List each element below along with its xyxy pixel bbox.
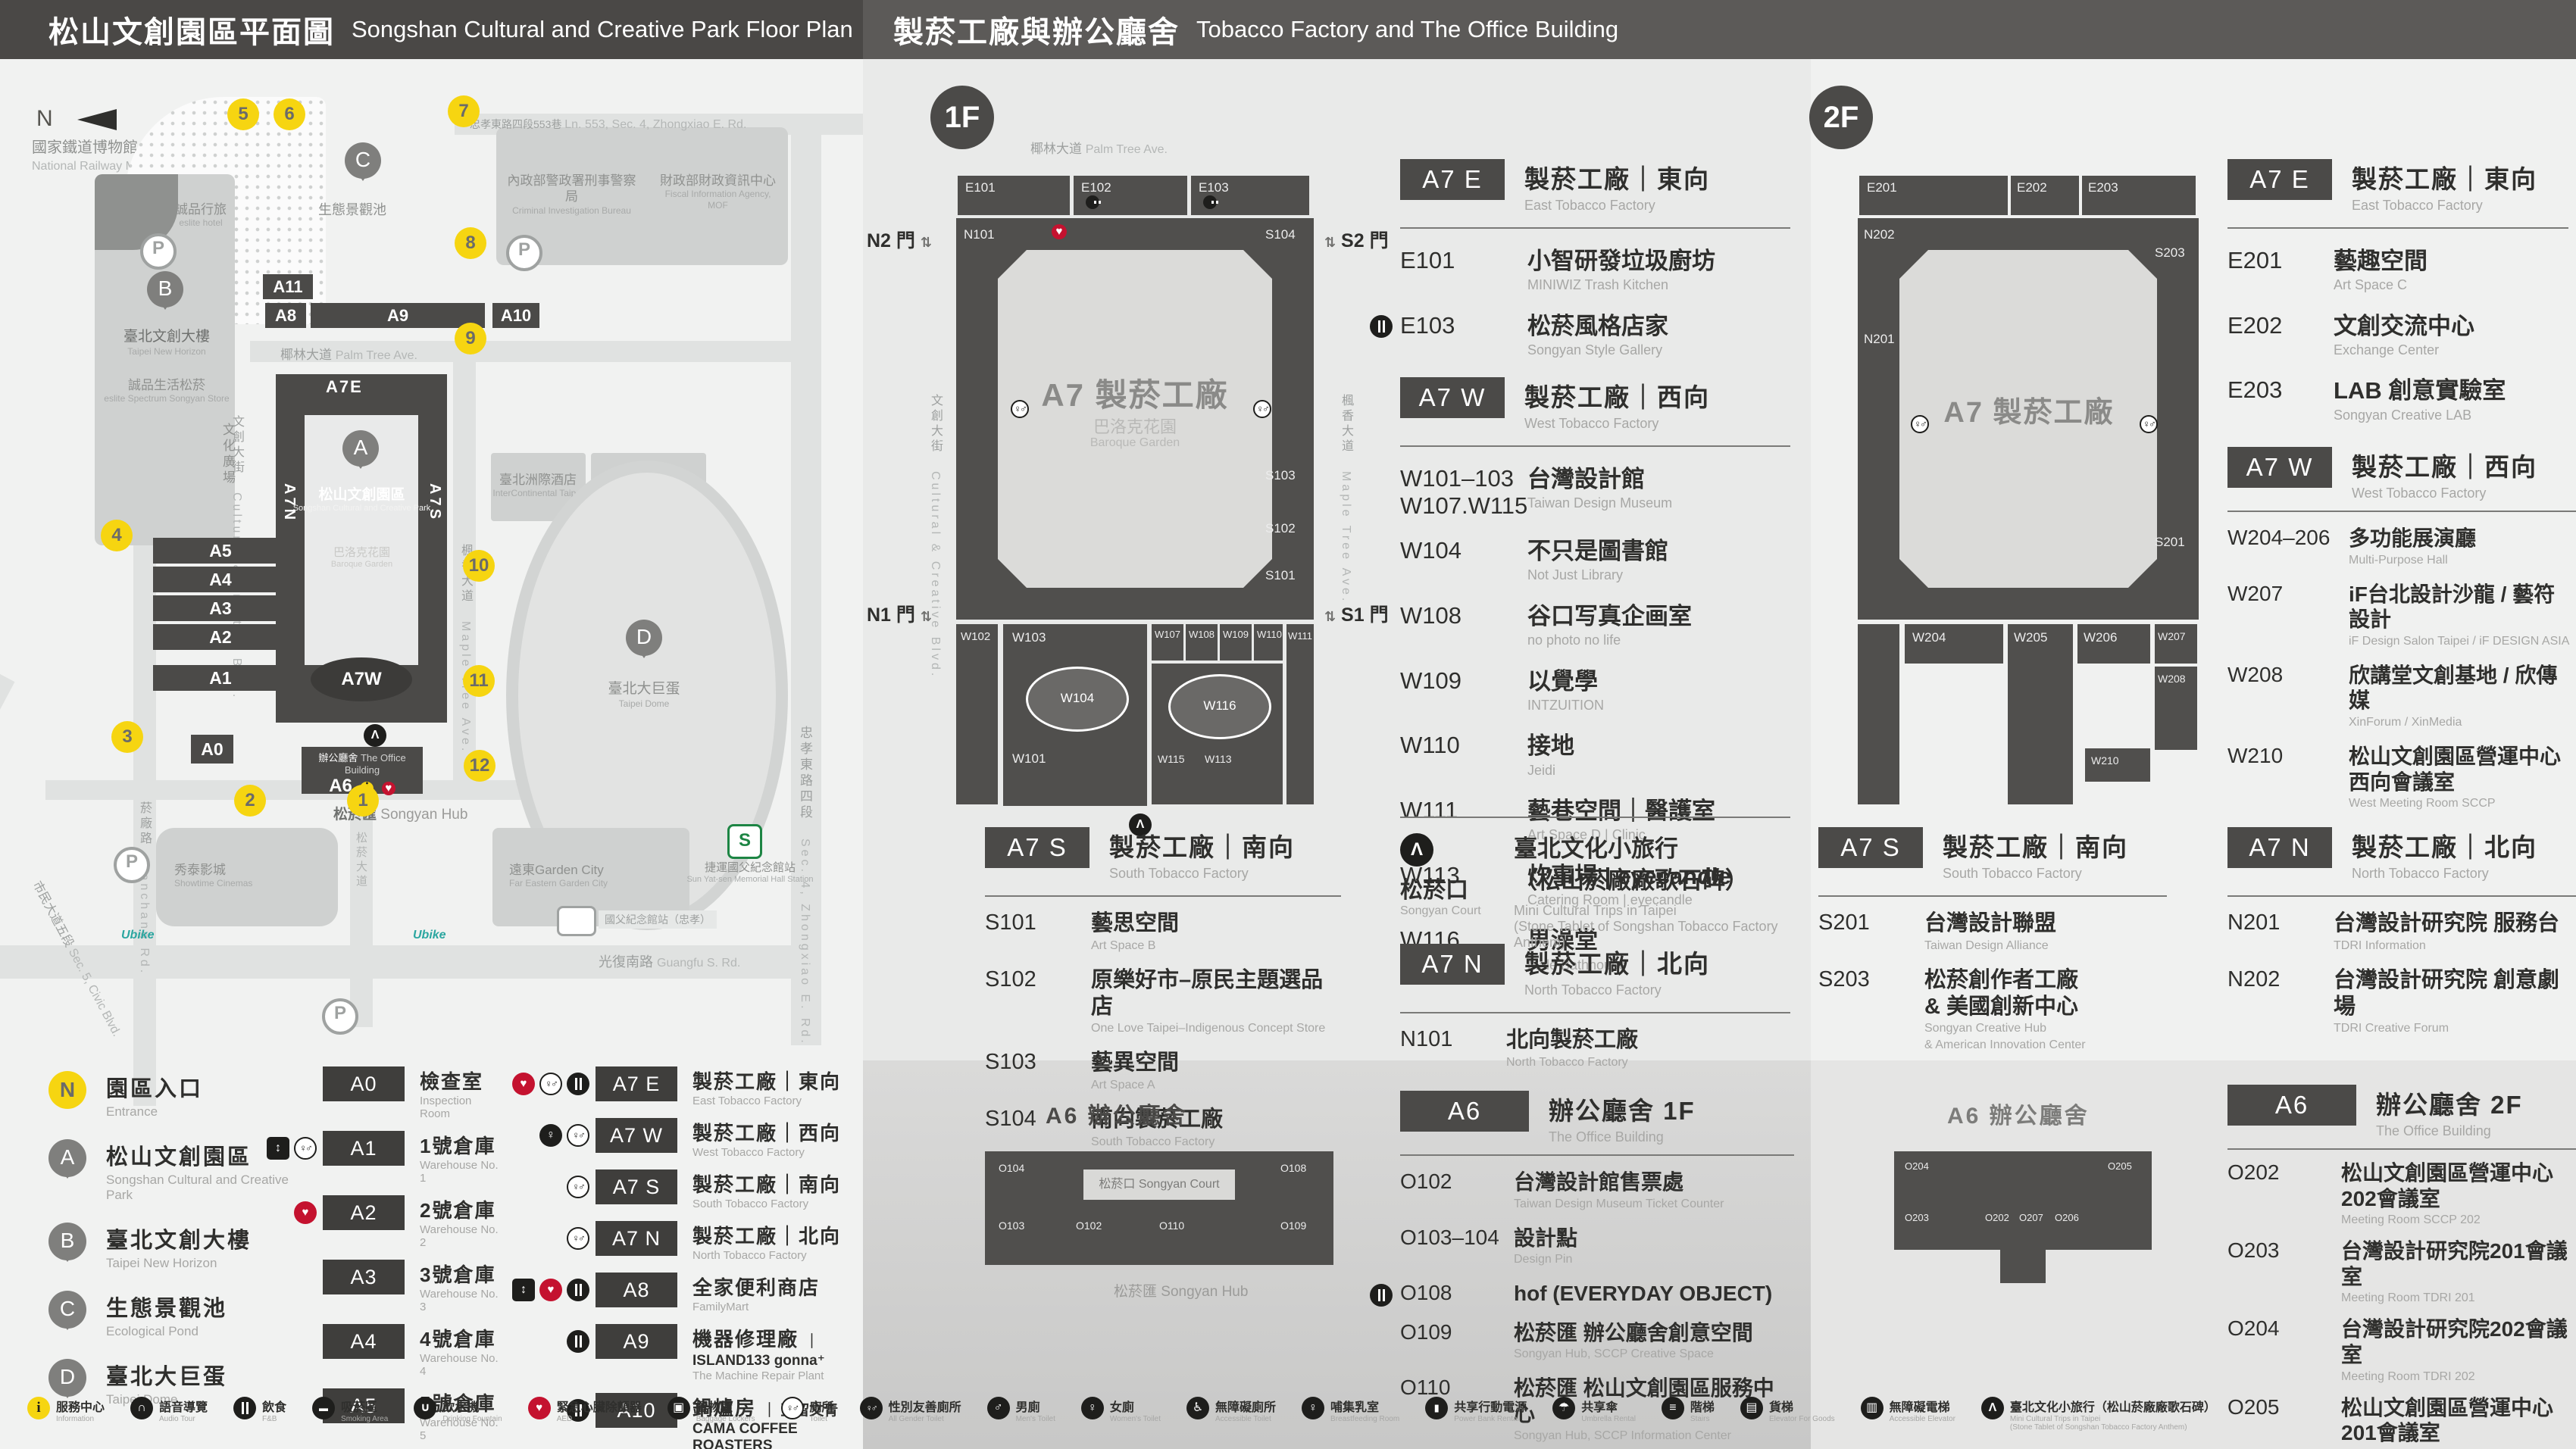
- divider: [2227, 227, 2568, 229]
- eslite-hotel-label: 誠品行旅 eslite hotel: [159, 201, 242, 229]
- guangfu-en: Guangfu S. Rd.: [657, 957, 740, 970]
- legend-building-row: A8 全家便利商店 FamilyMart: [500, 1273, 864, 1313]
- dining-icon: [567, 1330, 589, 1353]
- header-left: 松山文創園區平面圖 Songshan Cultural and Creative…: [0, 0, 863, 59]
- a6-2f-plan-stair: [2000, 1250, 2046, 1283]
- civic-zh: 市民大道五段: [30, 879, 76, 950]
- a7e-title-zh: 製菸工廠｜東向: [2352, 159, 2537, 195]
- toilet-icon: [539, 1073, 562, 1095]
- facility-en: Elevator For Goods: [1769, 1415, 1835, 1423]
- legend-building-en: Inspection Room: [420, 1095, 500, 1120]
- directory-2f-a7n: A7 N 製菸工廠｜北向 North Tobacco Factory N201 …: [2227, 827, 2576, 1036]
- lane553-label: 忠孝東路四段553巷 Ln. 553, Sec. 4, Zhongxiao E.…: [470, 117, 746, 132]
- legend-building-badge: A4: [323, 1324, 405, 1359]
- zhongxiao-label: 忠孝東路四段 Sec. 4, Zhongxiao E. Rd.: [796, 726, 814, 1046]
- entrance-7: 7: [448, 95, 480, 127]
- legend-building-row: A7 W 製菸工廠｜西向 West Tobacco Factory: [500, 1118, 864, 1159]
- a7s-badge: A7 S: [985, 827, 1089, 868]
- legend-building-row: A7 E 製菸工廠｜東向 East Tobacco Factory: [500, 1066, 864, 1107]
- facility-en: Baggage Lockers: [696, 1415, 755, 1423]
- a6-room-o102: O102: [1076, 1219, 1102, 1232]
- plan1f-road-right: 楓香大道 Maple Tree Ave.: [1336, 394, 1355, 604]
- plan1f-room-w115: W115: [1158, 753, 1185, 765]
- songyankou-section: 松菸口 Songyan Court 臺北文化小旅行 （松山菸廠廠歌石碑） Min…: [1400, 817, 1790, 951]
- facility-zh: 共享傘: [1581, 1397, 1636, 1415]
- legend-buildings-2: A7 E 製菸工廠｜東向 East Tobacco Factory A7 W 製…: [500, 1066, 864, 1449]
- a6-2f-plan-body: O204 O203 O202 O207 O206 O205: [1894, 1151, 2152, 1250]
- a6-room-o109: O109: [1280, 1219, 1306, 1232]
- facility-en: Audio Tour: [159, 1415, 208, 1423]
- facility-zh: 置物櫃: [696, 1397, 755, 1415]
- plan1f-room-w108: W108: [1186, 624, 1218, 660]
- a6-title-en: The Office Building: [1549, 1129, 1696, 1145]
- facility-zh: 性別友善廁所: [889, 1397, 961, 1415]
- plan1f-room-e102: E102: [1074, 176, 1187, 215]
- map-building-a9: A9: [311, 303, 485, 328]
- directory-row: S103 藝異空間Art Space A: [985, 1050, 1341, 1093]
- legend-marker: B: [48, 1223, 86, 1260]
- aed-icon: [382, 782, 395, 795]
- directory-row: O102 台灣設計館售票處Taiwan Design Museum Ticket…: [1400, 1170, 1794, 1212]
- a7e-map-text: A7E: [326, 377, 363, 396]
- plan2f-center-title: A7 製菸工廠: [1900, 389, 2158, 430]
- a6-room-o104: O104: [999, 1162, 1024, 1174]
- legend-building-row: A7 S 製菸工廠｜南向 South Tobacco Factory: [500, 1170, 864, 1210]
- directory-1f-a7n: A7 N 製菸工廠｜北向 North Tobacco Factory N101 …: [1400, 944, 1790, 1070]
- a6-room-o204: O204: [1905, 1160, 1929, 1172]
- trip-icon: [1981, 1397, 2004, 1419]
- map-building-a3: A3: [153, 595, 288, 621]
- legend-building-badge: A0: [323, 1066, 405, 1101]
- mrt-zh: 捷運國父紀念館站: [705, 861, 796, 874]
- a7n-title-zh: 製菸工廠｜北向: [2352, 827, 2537, 863]
- facility-item: 服務中心 Information: [27, 1397, 105, 1423]
- facility-en: Accessible Toilet: [1215, 1415, 1276, 1423]
- plan1f-room-e103: E103: [1191, 176, 1309, 215]
- plan1f-room-w116: W116: [1168, 674, 1271, 739]
- audio-icon: [130, 1397, 153, 1419]
- facility-item: 共享行動電源 Power Bank Rental: [1425, 1397, 1527, 1423]
- section-title-zh: 製菸工廠與辦公廳舍: [893, 8, 1180, 52]
- plan1f-room-w110: W110: [1254, 624, 1283, 660]
- park-name-en: Songshan Cultural and Creative Park: [288, 504, 436, 513]
- map-building-a1: A1: [153, 665, 288, 691]
- directory-row: S101 藝思空間Art Space B: [985, 910, 1341, 954]
- songyankou-zh: 臺北文化小旅行: [1514, 833, 1790, 865]
- gate-n2: N2 門 ⇅: [867, 226, 932, 253]
- legend-building-row: A2 2號倉庫 Warehouse No. 2: [227, 1195, 500, 1249]
- entrance-9: 9: [455, 323, 486, 354]
- legend-row-icons: [500, 1118, 589, 1153]
- plan1f-room-w109: W109: [1220, 624, 1252, 660]
- divider: [1400, 1154, 1794, 1156]
- pin-d-label: D: [636, 625, 652, 648]
- directory-row: W204–206 多功能展演廳Multi-Purpose Hall: [2227, 526, 2576, 568]
- eslite-spectrum-label: 誠品生活松菸 eslite Spectrum Songyan Store: [98, 377, 235, 404]
- facility-item: 置物櫃 Baggage Lockers: [667, 1397, 755, 1423]
- lane553-en: Ln. 553, Sec. 4, Zhongxiao E. Rd.: [564, 118, 746, 131]
- plan1f-room-w103-block: W103 W104 W101: [1003, 624, 1147, 806]
- facility-item: 廁所 Toilet: [781, 1397, 834, 1423]
- plan1f-room-n101: N101: [964, 227, 995, 242]
- pin-b-label: B: [158, 276, 173, 300]
- divider: [1400, 1012, 1790, 1013]
- baroque-en: Baroque Garden: [288, 560, 436, 569]
- floor-1f-badge: 1F: [930, 86, 994, 149]
- section-title-en: Tobacco Factory and The Office Building: [1196, 16, 1618, 43]
- divider: [2227, 1148, 2576, 1150]
- a5-label: A5: [209, 541, 231, 561]
- dining-icon: [1370, 1284, 1393, 1307]
- facility-en: Stairs: [1690, 1415, 1715, 1423]
- a6-songyancourt-label: 松菸口 Songyan Court: [1083, 1170, 1235, 1200]
- parking-p5: P: [334, 1003, 346, 1023]
- fia-zh: 財政部財政資訊中心: [660, 173, 776, 188]
- a7s-title-en: South Tobacco Factory: [1109, 866, 1295, 882]
- map-building-a4: A4: [153, 567, 288, 592]
- plan2f-room-n202: N202: [1864, 227, 1895, 242]
- showtime-label: 秀泰影城 Showtime Cinemas: [174, 862, 318, 889]
- facility-en: Smoking Area: [341, 1415, 388, 1423]
- a6-room-o108: O108: [1280, 1162, 1306, 1174]
- legend-building-badge: A8: [596, 1273, 677, 1307]
- a7s-title-en: South Tobacco Factory: [1943, 866, 2128, 882]
- facility-en2: (Stone Tablet of Songshan Tobacco Factor…: [2010, 1423, 2216, 1432]
- dining-icon: [567, 1279, 589, 1301]
- directory-1f-a6: A6 辦公廳舍 1F The Office Building O102 台灣設計…: [1400, 1091, 1794, 1444]
- a7s-badge: A7 S: [1818, 827, 1923, 868]
- eslite-spectrum-en: eslite Spectrum Songyan Store: [98, 393, 235, 404]
- page-title-en: Songshan Cultural and Creative Park Floo…: [352, 16, 853, 43]
- plan1f-room-w111: W111: [1286, 624, 1314, 804]
- divider: [2227, 895, 2576, 897]
- parking-icon-eslite: P: [140, 233, 177, 270]
- songyan-ave-label: 松菸大道: [353, 832, 369, 889]
- facility-zh: 飲食: [262, 1397, 286, 1415]
- legend-building-badge: A7 S: [596, 1170, 677, 1204]
- dining-icon: [1203, 195, 1217, 209]
- bus-stop-icon: [557, 906, 596, 936]
- directory-row: N101 北向製菸工廠North Tobacco Factory: [1400, 1027, 1790, 1070]
- a6-room-o206: O206: [2055, 1212, 2079, 1223]
- legend-en: Entrance: [106, 1104, 203, 1120]
- a9-label: A9: [387, 306, 408, 326]
- divider: [985, 895, 1341, 897]
- legend-building-badge: A7 E: [596, 1066, 677, 1101]
- facility-item: 吸菸區 Smoking Area: [312, 1397, 388, 1423]
- directory-row: W207 iF台北設計沙龍 / 藝符設計iF Design Salon Taip…: [2227, 582, 2576, 649]
- a10-label: A10: [501, 306, 531, 326]
- a7e-badge: A7 E: [2227, 159, 2332, 200]
- a11-label: A11: [273, 277, 302, 297]
- a6-1f-plan-title: A6 辦公廳舍: [1046, 1097, 1188, 1130]
- directory-row: S203 松菸創作者工廠& 美國創新中心Songyan Creative Hub…: [1818, 967, 2167, 1054]
- a7s-title-zh: 製菸工廠｜南向: [1109, 827, 1295, 863]
- legend-building-zh: 檢查室: [420, 1070, 483, 1093]
- facility-en: AED: [557, 1415, 642, 1423]
- pin-a-label: A: [354, 436, 368, 459]
- facility-zh: 服務中心: [56, 1397, 105, 1415]
- fia-label: 財政部財政資訊中心 Fiscal Information Agency, MOF: [655, 173, 780, 211]
- a1-label: A1: [209, 668, 231, 689]
- facility-item: 飲食 F&B: [233, 1397, 286, 1423]
- legend-building-zh: 製菸工廠｜西向: [692, 1122, 841, 1145]
- map-pin-a: A: [342, 430, 379, 467]
- plan1f-room-w104: W104: [1026, 667, 1129, 732]
- a7e-badge: A7 E: [1400, 159, 1505, 200]
- legend-building-en: West Tobacco Factory: [692, 1146, 841, 1159]
- a6-room-o203: O203: [1905, 1212, 1929, 1223]
- songyankou-en: Mini Cultural Trips in Taipei: [1514, 903, 1790, 919]
- legend-building-badge: A9: [596, 1324, 677, 1359]
- facility-en: Mini Cultural Trips in Taipei: [2010, 1415, 2216, 1423]
- a7e-title-en: East Tobacco Factory: [2352, 198, 2537, 214]
- baroque-label: 巴洛克花園 Baroque Garden: [288, 544, 436, 569]
- a7w-badge: A7 W: [1400, 377, 1505, 418]
- a7n-title-en: North Tobacco Factory: [1524, 982, 1710, 998]
- directory-row: W104 不只是圖書館Not Just Library: [1400, 537, 1790, 584]
- entrance-8: 8: [455, 227, 486, 259]
- map-building-a5: A5: [153, 538, 288, 564]
- facility-en: Information: [56, 1415, 105, 1423]
- facility-item: 性別友善廁所 All Gender Toilet: [860, 1397, 961, 1423]
- plan1f-room-w101: W101: [1012, 751, 1046, 767]
- a7n-badge: A7 N: [1400, 944, 1505, 985]
- nursing-icon: [539, 1124, 562, 1147]
- songyankou-title-zh: 松菸口: [1400, 871, 1514, 904]
- songyankou-zh2: （松山菸廠廠歌石碑）: [1514, 865, 1790, 897]
- legend-building-zh: 1號倉庫: [420, 1135, 496, 1157]
- legend-zh: 臺北大巨蛋: [106, 1359, 227, 1391]
- parking-icon-3: P: [506, 235, 542, 271]
- header-right: 製菸工廠與辦公廳舍 Tobacco Factory and The Office…: [863, 0, 2576, 59]
- facility-en: Breastfeeding Room: [1330, 1415, 1399, 1423]
- directory-row: W109 以覺學INTZUITION: [1400, 667, 1790, 714]
- legend-building-badge: A3: [323, 1260, 405, 1294]
- stairs-icon: [1662, 1397, 1684, 1419]
- legend-building-row: A9 機器修理廠｜ ISLAND133 gonna⁺ The Machine R…: [500, 1324, 864, 1382]
- map-pin-d: D: [626, 620, 662, 656]
- guangfu-zh: 光復南路: [599, 954, 653, 970]
- a6-title-en: The Office Building: [2376, 1123, 2523, 1139]
- accessible-icon: [1186, 1397, 1209, 1419]
- map-panel: N 國家鐵道博物館 National Railway Museum C 生態景觀…: [0, 59, 863, 1449]
- entrance-12: 12: [464, 750, 496, 782]
- map-pin-b: B: [147, 271, 183, 308]
- parking-icon-4: P: [114, 847, 150, 883]
- directory-row: O203 台灣設計研究院201會議室Meeting Room TDRI 201: [2227, 1238, 2576, 1306]
- a6-room-o205: O205: [2108, 1160, 2132, 1172]
- plan2f-room-w205: W205: [2008, 624, 2073, 804]
- legend-building-badge: A7 N: [596, 1221, 677, 1256]
- allgender-icon: [860, 1397, 883, 1419]
- facility-zh: 吸菸區: [341, 1397, 388, 1415]
- facility-en: Women's Toilet: [1110, 1415, 1161, 1423]
- park-name-label: 松山文創園區 Songshan Cultural and Creative Pa…: [288, 483, 436, 513]
- fountain-icon: [414, 1397, 436, 1419]
- plan1f-room-s104: S104: [1265, 227, 1296, 242]
- directory-row: E202 文創交流中心Exchange Center: [2227, 312, 2568, 359]
- plan1f-center-title: A7 製菸工廠: [999, 370, 1271, 416]
- facility-strip: 服務中心 Information 語音導覽 Audio Tour 飲食 F&B …: [27, 1397, 2242, 1432]
- locker-icon: [667, 1397, 690, 1419]
- showtime-zh: 秀泰影城: [174, 863, 226, 877]
- directory-row: W208 欣講堂文創基地 / 欣傳媒XinForum / XinMedia: [2227, 663, 2576, 730]
- plan1f-room-w102: W102: [956, 624, 998, 804]
- map-building-a2: A2: [153, 624, 288, 650]
- a6-title-zh: 辦公廳舍 1F: [1549, 1091, 1696, 1127]
- a6-1f-plan-body: O104 O103 O102 O110 O108 O109 松菸口 Songya…: [985, 1151, 1333, 1265]
- legend-building-badge: A2: [323, 1195, 405, 1230]
- a7n-title-en: North Tobacco Factory: [2352, 866, 2537, 882]
- legend-row-icons: [500, 1221, 589, 1256]
- pin-c-label: C: [355, 148, 370, 171]
- legend-row-icons: [500, 1324, 589, 1359]
- legend-building-en: Warehouse No. 2: [420, 1223, 500, 1249]
- plan1f-room-s102: S102: [1265, 521, 1296, 536]
- legend-building-en: East Tobacco Factory: [692, 1095, 841, 1107]
- legend-building-row: A3 3號倉庫 Warehouse No. 3: [227, 1260, 500, 1313]
- plan1f-road-top: 椰林大道 Palm Tree Ave.: [1030, 138, 1168, 157]
- legend-row-icons: [227, 1066, 317, 1101]
- map-building-a11: A11: [263, 274, 313, 299]
- plan2f-room-w210: W210: [2085, 748, 2150, 782]
- facility-zh: 飲水機: [442, 1397, 502, 1415]
- directory-row: O205 松山文創園區營運中心201會議室Meeting Room SCCP 2…: [2227, 1395, 2576, 1449]
- legend-buildings-1: A0 檢查室 Inspection Room A1 1號倉庫 Warehouse…: [227, 1066, 500, 1449]
- directory-row: O103–104 設計點Design Pin: [1400, 1226, 1794, 1268]
- zhongxiao-zh: 忠孝東路四段: [798, 726, 812, 821]
- eslite-hotel-zh: 誠品行旅: [175, 202, 227, 217]
- a7w-title-en: West Tobacco Factory: [2352, 486, 2537, 501]
- women-icon: [1081, 1397, 1104, 1419]
- divider: [1400, 227, 1790, 229]
- a7w-badge: A7 W: [2227, 447, 2332, 488]
- dome-label: 臺北大巨蛋 Taipei Dome: [591, 680, 697, 710]
- legend-row-icons: [500, 1170, 589, 1204]
- garden-city-label: 遠東Garden City Far Eastern Garden City: [509, 862, 676, 889]
- legend-building-zh: 製菸工廠｜北向: [692, 1225, 841, 1248]
- poster-canvas: 松山文創園區平面圖 Songshan Cultural and Creative…: [0, 0, 2576, 1449]
- a6-2f-plan: O204 O203 O202 O207 O206 O205: [1894, 1136, 2152, 1303]
- elevator-icon: [267, 1137, 289, 1160]
- legend-building-en: The Machine Repair Plant: [692, 1369, 864, 1382]
- a7e-title-en: East Tobacco Factory: [1524, 198, 1710, 214]
- parking-p3: P: [518, 239, 530, 260]
- icc-zh: 臺北洲際酒店: [499, 473, 577, 487]
- plan1f-room-w107: W107: [1152, 624, 1183, 660]
- a7w-map-text: A7W: [341, 669, 381, 689]
- legend-marker: D: [48, 1359, 86, 1397]
- plan1f-room-e101: E101: [958, 176, 1070, 215]
- compass-arrow-icon: [67, 109, 117, 130]
- legend-building-en: North Tobacco Factory: [692, 1249, 841, 1262]
- a6-room-o207: O207: [2019, 1212, 2043, 1223]
- facility-item: 階梯 Stairs: [1662, 1397, 1715, 1423]
- ubike-icon-2: Ubike: [413, 929, 446, 942]
- park-name-zh: 松山文創園區: [318, 487, 405, 503]
- facility-zh: 貨梯: [1769, 1397, 1835, 1415]
- dining-icon: [1086, 195, 1099, 209]
- info-icon: [27, 1397, 50, 1419]
- a0-label: A0: [201, 739, 223, 760]
- legend-en: Ecological Pond: [106, 1324, 227, 1339]
- baroque-zh: 巴洛克花園: [333, 546, 390, 559]
- gate-s1: ⇅ S1 門: [1324, 600, 1389, 627]
- legend-building-zh: 2號倉庫: [420, 1199, 496, 1222]
- divider: [1818, 895, 2167, 897]
- map-building-a8: A8: [265, 303, 306, 328]
- legend-row-icons: [227, 1195, 317, 1230]
- legend-building-row: A0 檢查室 Inspection Room: [227, 1066, 500, 1120]
- dome-zh: 臺北大巨蛋: [608, 681, 680, 697]
- directory-2f-a7e: A7 E 製菸工廠｜東向 East Tobacco Factory E201 藝…: [2227, 159, 2568, 423]
- legend-row-icons: [227, 1131, 317, 1166]
- facility-zh: 無障礙電梯: [1890, 1397, 1955, 1415]
- legend-zh: 園區入口: [106, 1071, 203, 1103]
- mrt-en: Sun Yat-sen Memorial Hall Station: [667, 875, 833, 884]
- directory-row: N201 台灣設計研究院 服務台TDRI Information: [2227, 910, 2576, 954]
- aed-icon: [528, 1397, 551, 1419]
- legend-building-row: A1 1號倉庫 Warehouse No. 1: [227, 1131, 500, 1185]
- cib-zh: 內政部警政署刑事警察局: [508, 173, 636, 204]
- aed-icon: [512, 1073, 535, 1095]
- toilet-icon: [294, 1137, 317, 1160]
- aed-icon: [294, 1201, 317, 1224]
- umbrella-icon: [1552, 1397, 1575, 1419]
- facility-item: 緊急心臟除顫器 AED: [528, 1397, 642, 1423]
- map-building-a0: A0: [191, 735, 233, 764]
- plan1f-ring: N101 S104 S103 S102 S101 A7 製菸工廠 巴洛克花園 B…: [956, 218, 1314, 620]
- plan2f-room-e201: E201: [1859, 176, 2008, 215]
- plan2f-room-n201: N201: [1864, 332, 1895, 347]
- a8-label: A8: [275, 306, 296, 326]
- facility-zh: 階梯: [1690, 1397, 1715, 1415]
- plan2f-room-w208: W208: [2155, 667, 2197, 750]
- legend-row-icons: [227, 1324, 317, 1359]
- facility-zh: 哺集乳室: [1330, 1397, 1399, 1415]
- mrt-label: 捷運國父紀念館站 Sun Yat-sen Memorial Hall Stati…: [667, 859, 833, 884]
- railway-zh: 國家鐵道博物館: [32, 139, 138, 156]
- nursing-icon: [1302, 1397, 1324, 1419]
- mrt-logo-icon: S: [727, 824, 762, 859]
- ccblvd-zh: 文創大街: [230, 415, 243, 476]
- facility-zh: 無障礙廁所: [1215, 1397, 1276, 1415]
- toilet-icon: [1911, 415, 1929, 433]
- plan1f-room-w113: W113: [1205, 753, 1232, 765]
- elevator-icon: [512, 1279, 535, 1301]
- facility-zh: 男廁: [1016, 1397, 1055, 1415]
- new-horizon-en: Taipei New Horizon: [98, 346, 235, 358]
- parking-icon-5: P: [322, 998, 358, 1035]
- plan2f-left-wing: [1858, 624, 1899, 804]
- dining-icon: [233, 1397, 256, 1419]
- new-horizon-label: 臺北文創大樓 Taipei New Horizon: [98, 328, 235, 358]
- directory-row: E103 松菸風格店家Songyan Style Gallery: [1400, 312, 1790, 359]
- directory-row: O202 松山文創園區營運中心202會議室Meeting Room SCCP 2…: [2227, 1160, 2576, 1228]
- plan1f-road-left: 文創大街 Cultural & Creative Blvd.: [926, 394, 944, 679]
- legend-building-zh: 全家便利商店: [692, 1276, 820, 1299]
- cib-label: 內政部警政署刑事警察局 Criminal Investigation Burea…: [502, 173, 642, 217]
- facility-zh: 語音導覽: [159, 1397, 208, 1415]
- garden-zh: 遠東Garden City: [509, 863, 604, 877]
- facility-item: 哺集乳室 Breastfeeding Room: [1302, 1397, 1399, 1423]
- pond-label: 生態景觀池: [318, 199, 386, 219]
- facility-en: All Gender Toilet: [889, 1415, 961, 1423]
- compass: N: [36, 106, 117, 132]
- facility-en: Men's Toilet: [1016, 1415, 1055, 1423]
- facility-en: Umbrella Rental: [1581, 1415, 1636, 1423]
